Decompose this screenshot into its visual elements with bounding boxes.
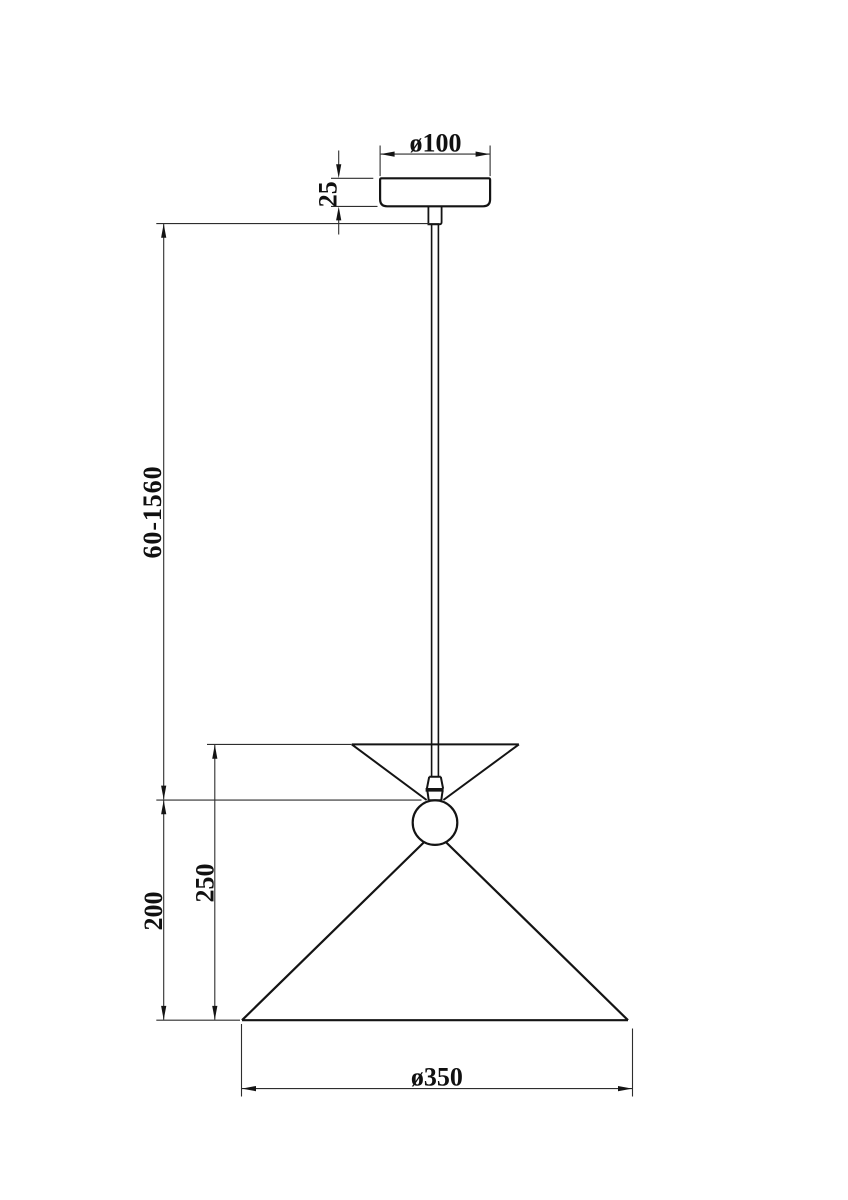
svg-text:25: 25 (314, 181, 343, 207)
svg-text:ø350: ø350 (411, 1063, 463, 1092)
svg-text:250: 250 (191, 864, 220, 903)
svg-text:200: 200 (139, 892, 168, 931)
svg-text:60-1560: 60-1560 (138, 466, 167, 559)
svg-text:ø100: ø100 (410, 129, 462, 158)
